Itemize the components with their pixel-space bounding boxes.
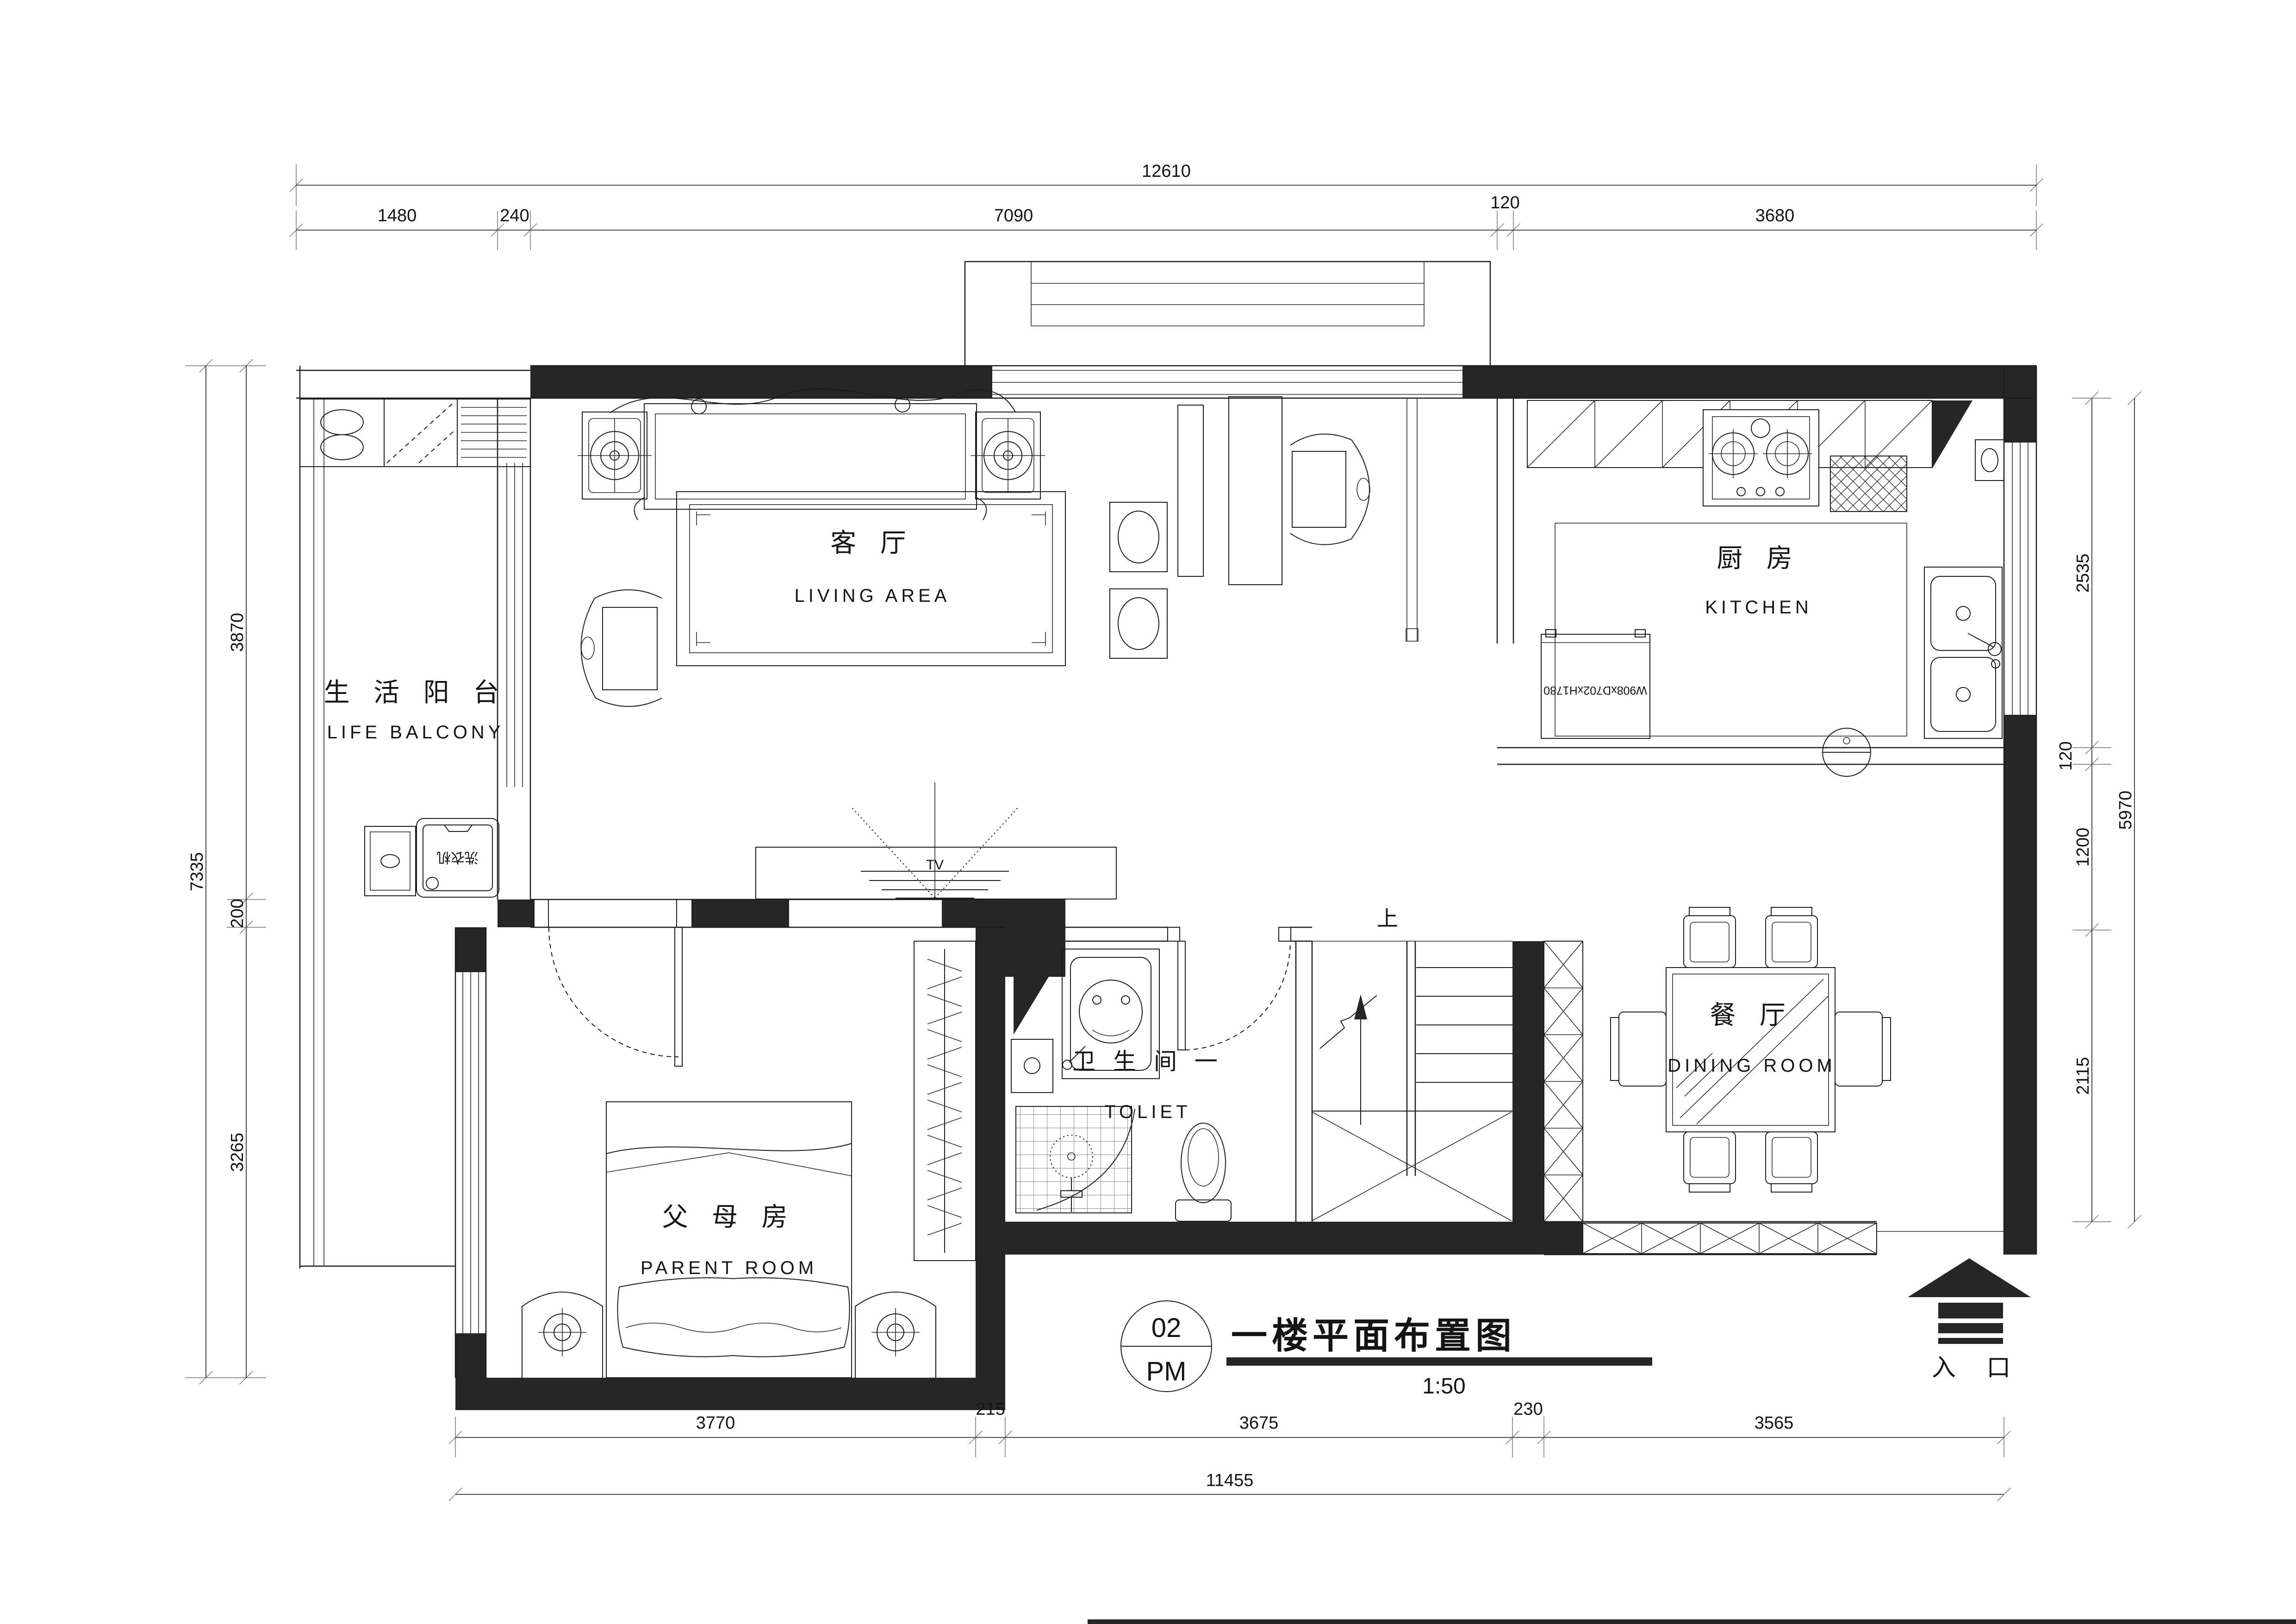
- side-table-right: [971, 412, 1045, 499]
- dining-table: [1666, 968, 1835, 1132]
- washing-machine: 洗衣机: [417, 818, 499, 897]
- sheet-edge: [1088, 1619, 2296, 1624]
- fridge: W908xD702xH1780: [1541, 630, 1650, 738]
- dim-top-2: 240: [500, 206, 529, 225]
- dining-south-cabinet: [1583, 1223, 1877, 1254]
- parent-room: 父 母 房 PARENT ROOM: [522, 941, 976, 1378]
- hall-screen-1: [1178, 405, 1203, 576]
- tv-unit: TV: [756, 782, 1116, 899]
- stool-bottom: [1110, 589, 1167, 658]
- drawing-scale: 1:50: [1422, 1374, 1465, 1399]
- bed: [606, 1102, 852, 1378]
- sheet-number: 02: [1151, 1313, 1182, 1343]
- nightstand-right: [855, 1292, 936, 1378]
- entrance-marker: 入 口: [1908, 1258, 2031, 1381]
- drawing-title: 一楼平面布置图: [1231, 1315, 1516, 1356]
- toilet-label-cn: 卫 生 间 一: [1072, 1049, 1223, 1074]
- armchair-left: [581, 590, 662, 706]
- bath-shaft-flag: [1014, 968, 1054, 1035]
- stool-top: [1110, 502, 1167, 572]
- living-room: 客 厅 LIVING AREA TV: [533, 389, 1370, 1066]
- dim-right-1: 2535: [2073, 554, 2093, 593]
- parent-door: [533, 899, 692, 1066]
- balcony-label-cn: 生 活 阳 台: [324, 678, 508, 707]
- stairs-up-label: 上: [1377, 906, 1398, 931]
- dim-top-1: 1480: [378, 206, 417, 225]
- living-label-en: LIVING AREA: [795, 586, 951, 606]
- washer-label: 洗衣机: [437, 849, 479, 865]
- balcony: 洗衣机 生 活 阳 台 LIFE BALCONY: [300, 399, 530, 897]
- gas-stove: [1703, 410, 1819, 506]
- armchair-hall: [1290, 434, 1370, 545]
- hall-screen-2: [1229, 397, 1282, 585]
- dim-top-overall: 12610: [1142, 162, 1191, 181]
- dim-bottom-1: 3770: [696, 1413, 735, 1433]
- dim-bottom-2: 215: [976, 1399, 1005, 1419]
- kitchen-sink: [1924, 567, 2002, 738]
- dining-label-cn: 餐 厅: [1710, 1000, 1794, 1030]
- stairs: 上: [1312, 906, 1512, 1221]
- dim-left-1: 3870: [228, 613, 247, 652]
- dim-left-2: 200: [228, 899, 247, 928]
- balcony-cabinet: [365, 826, 416, 896]
- dim-bottom-overall: 11455: [1206, 1471, 1254, 1490]
- dim-right-3: 1200: [2073, 828, 2093, 867]
- dim-left-overall: 7335: [187, 852, 207, 892]
- floor-drain: [1823, 728, 1871, 776]
- parent-label-en: PARENT ROOM: [641, 1258, 817, 1278]
- bath-cabinet: [1011, 1039, 1053, 1093]
- dim-top-3: 7090: [994, 206, 1033, 225]
- parent-label-cn: 父 母 房: [662, 1202, 796, 1231]
- dim-bottom-3: 3675: [1239, 1413, 1279, 1433]
- bath-door: [1168, 927, 1291, 1050]
- dim-right-2: 120: [2056, 741, 2076, 770]
- living-label-cn: 客 厅: [830, 528, 915, 557]
- dining-room: 餐 厅 DINING ROOM: [1544, 907, 1891, 1254]
- corner-fixture: [1975, 440, 2004, 481]
- toilet: [1176, 1123, 1231, 1221]
- living-rug: [677, 492, 1065, 666]
- fridge-size-label: W908xD702xH1780: [1543, 684, 1647, 697]
- side-table-left: [578, 412, 652, 499]
- dining-west-cabinet: [1544, 941, 1583, 1222]
- balcony-label-en: LIFE BALCONY: [327, 722, 504, 743]
- drawing-sheet: 洗衣机 生 活 阳 台 LIFE BALCONY: [0, 0, 2296, 1624]
- kitchen-appliance: [1830, 456, 1907, 512]
- sofa: [610, 389, 1015, 520]
- stairs-up-arrow: [1320, 994, 1377, 1125]
- dining-label-en: DINING ROOM: [1668, 1056, 1836, 1076]
- tv-label: TV: [926, 857, 944, 873]
- floor-plan-canvas: 洗衣机 生 活 阳 台 LIFE BALCONY: [0, 0, 2296, 1624]
- bay-window-outline: [965, 262, 1490, 366]
- kitchen-label-cn: 厨 房: [1717, 543, 1801, 573]
- sheet-code: PM: [1146, 1356, 1187, 1387]
- wardrobe: [914, 941, 976, 1261]
- dim-bottom-5: 3565: [1755, 1413, 1794, 1433]
- entrance-arrow-icon: [1908, 1258, 2031, 1297]
- nightstand-left: [522, 1292, 603, 1378]
- dim-left-3: 3265: [228, 1133, 247, 1172]
- kitchen-shaft-flag: [1932, 400, 1972, 468]
- entrance-label: 入 口: [1932, 1355, 2022, 1381]
- dim-bottom-4: 230: [1513, 1399, 1543, 1419]
- dim-right-4: 2115: [2073, 1057, 2093, 1095]
- toilet-label-en: TOLIET: [1104, 1102, 1191, 1122]
- kitchen: W908xD702xH1780 厨 房 KITCHEN: [1527, 400, 2004, 776]
- shower: [1016, 1106, 1135, 1213]
- dim-right-overall: 5970: [2116, 791, 2135, 830]
- dim-top-5: 3680: [1755, 206, 1795, 225]
- dim-top-4: 120: [1490, 193, 1519, 212]
- kitchen-label-en: KITCHEN: [1705, 597, 1812, 618]
- title-block: 02 PM 一楼平面布置图 1:50: [1121, 1301, 1652, 1399]
